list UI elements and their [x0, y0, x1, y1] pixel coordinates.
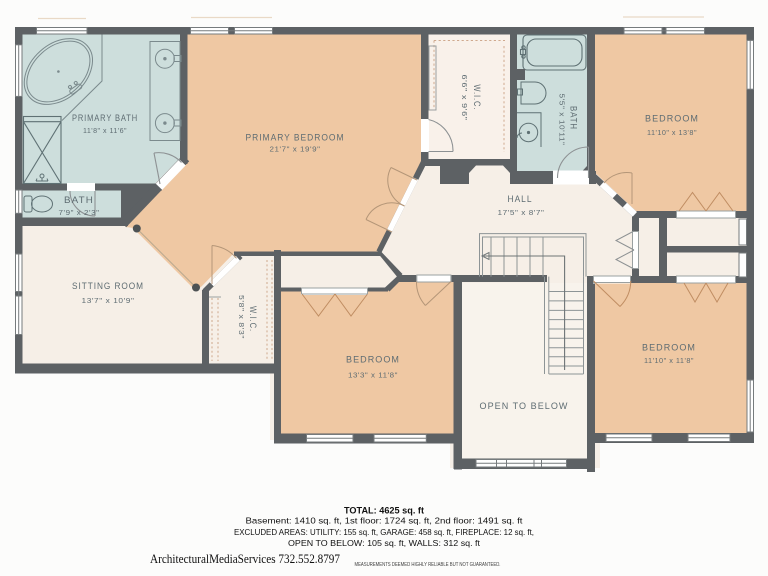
- svg-text:PRIMARY BATH: PRIMARY BATH: [72, 113, 138, 124]
- svg-text:6'6" x 9'6": 6'6" x 9'6": [460, 75, 469, 121]
- svg-text:BEDROOM: BEDROOM: [642, 342, 696, 353]
- svg-text:5'8" x 8'3": 5'8" x 8'3": [237, 295, 246, 339]
- svg-text:EXCLUDED AREAS: UTILITY: 155 s: EXCLUDED AREAS: UTILITY: 155 sq. ft, GAR…: [234, 527, 534, 537]
- svg-text:11'10" x 11'8": 11'10" x 11'8": [644, 356, 694, 365]
- svg-text:MEASUREMENTS DEEMED HIGHLY REL: MEASUREMENTS DEEMED HIGHLY RELIABLE BUT …: [355, 562, 501, 568]
- svg-text:BATH: BATH: [64, 195, 94, 206]
- svg-text:SITTING ROOM: SITTING ROOM: [72, 281, 144, 292]
- svg-text:BEDROOM: BEDROOM: [645, 114, 699, 125]
- svg-text:HALL: HALL: [508, 194, 533, 205]
- svg-text:PRIMARY BEDROOM: PRIMARY BEDROOM: [246, 132, 345, 143]
- svg-text:ArchitecturalMediaServices 732: ArchitecturalMediaServices 732.552.8797: [150, 551, 340, 566]
- svg-text:BATH: BATH: [568, 106, 579, 130]
- svg-text:BEDROOM: BEDROOM: [346, 355, 400, 366]
- svg-text:17'5" x 8'7": 17'5" x 8'7": [498, 208, 545, 217]
- svg-text:OPEN TO BELOW: 105 sq. ft, WAL: OPEN TO BELOW: 105 sq. ft, WALLS: 312 sq…: [288, 538, 481, 548]
- svg-text:W.I.C.: W.I.C.: [471, 84, 482, 110]
- svg-text:7'9" x 2'3": 7'9" x 2'3": [59, 208, 100, 217]
- svg-text:11'8" x 11'6": 11'8" x 11'6": [83, 126, 127, 135]
- svg-text:5'5" x 10'11": 5'5" x 10'11": [558, 94, 567, 146]
- svg-text:13'7" x 10'9": 13'7" x 10'9": [82, 296, 135, 305]
- svg-text:13'3" x 11'8": 13'3" x 11'8": [348, 371, 398, 380]
- svg-text:11'10" x 13'8": 11'10" x 13'8": [647, 128, 697, 137]
- svg-text:21'7" x 19'9": 21'7" x 19'9": [270, 145, 321, 154]
- svg-text:TOTAL: 4625 sq. ft: TOTAL: 4625 sq. ft: [344, 506, 424, 516]
- svg-text:OPEN TO BELOW: OPEN TO BELOW: [480, 401, 569, 412]
- svg-text:Basement: 1410 sq. ft, 1st flo: Basement: 1410 sq. ft, 1st floor: 1724 s…: [246, 515, 524, 525]
- svg-text:W.I.C.: W.I.C.: [247, 306, 258, 332]
